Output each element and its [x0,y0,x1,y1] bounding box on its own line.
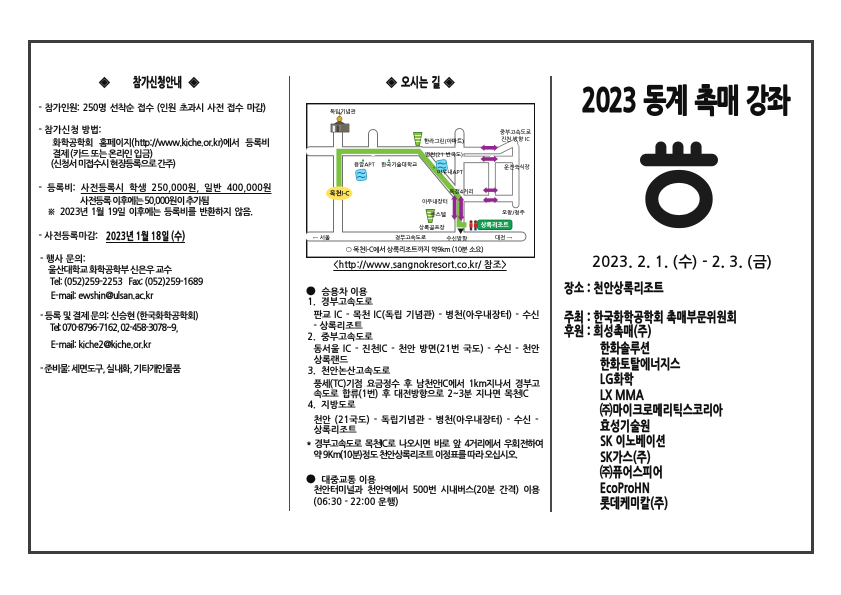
svg-text:아우내장터: 아우내장터 [422,199,448,205]
svg-text:병천(21 번국도): 병천(21 번국도) [425,152,463,158]
svg-text:경부고속도로: 경부고속도로 [395,234,426,240]
svg-text:운전숙식장: 운전숙식장 [504,164,530,170]
svg-text:중부고속도로: 중부고속도로 [500,129,531,135]
svg-text:용암APT: 용암APT [354,162,375,168]
svg-text:대전 →: 대전 → [495,234,513,240]
svg-text:독정4거리: 독정4거리 [449,189,473,195]
svg-text:독립기념관: 독립기념관 [330,109,357,115]
svg-text:○ 목천I-C에서 상록리조트까지 약9km (10분 소요: ○ 목천I-C에서 상록리조트까지 약9km (10분 소요) [345,246,483,254]
svg-text:유스텔: 유스텔 [430,212,446,218]
svg-text:← 서울: ← 서울 [313,233,330,240]
svg-text:목천I-C: 목천I-C [329,190,349,197]
svg-text:한국기술대학교: 한국기술대학교 [381,162,417,168]
svg-text:상록골프장: 상록골프장 [419,224,445,231]
svg-text:상록리조트: 상록리조트 [480,221,509,228]
svg-text:수신방향: 수신방향 [446,235,468,241]
svg-text:진천 방향 IC: 진천 방향 IC [501,135,530,142]
svg-text:아우내APT: 아우내APT [437,169,463,175]
svg-text:오창/청주: 오창/청주 [502,210,525,216]
svg-text:한라그린(아파트): 한라그린(아파트) [424,138,464,144]
